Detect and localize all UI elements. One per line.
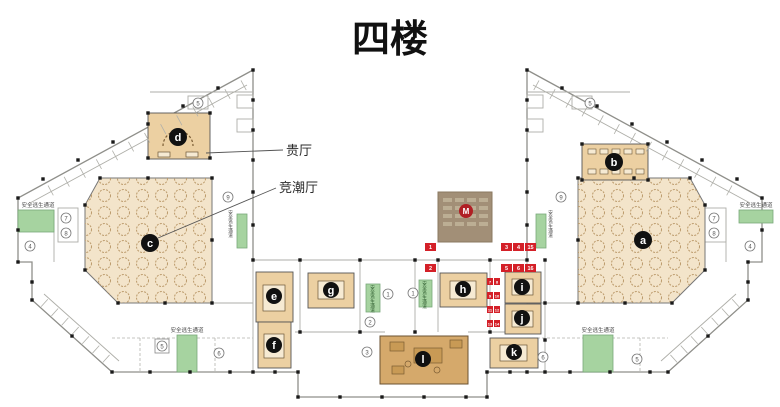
column-marker bbox=[746, 280, 749, 283]
column-marker bbox=[358, 258, 361, 261]
small-table bbox=[636, 149, 644, 154]
column-marker bbox=[648, 370, 651, 373]
svg-text:l: l bbox=[421, 354, 424, 366]
stair-tick bbox=[72, 327, 79, 334]
stair-tick bbox=[670, 355, 677, 362]
column-marker bbox=[83, 203, 86, 206]
vip-hall-label: 贵厅 bbox=[286, 143, 312, 158]
column-marker bbox=[630, 122, 633, 125]
column-marker bbox=[703, 268, 706, 271]
escape-box-right-edge bbox=[739, 210, 773, 223]
escape-label: 安全逃生通道 bbox=[739, 201, 773, 209]
column-marker bbox=[525, 370, 528, 373]
column-marker bbox=[16, 228, 19, 231]
svg-text:d: d bbox=[175, 132, 182, 144]
column-marker bbox=[688, 176, 691, 179]
column-marker bbox=[703, 203, 706, 206]
column-marker bbox=[146, 111, 149, 114]
column-marker bbox=[296, 395, 299, 398]
red-badge: 16 bbox=[527, 266, 533, 272]
room-f-marker: f bbox=[266, 337, 282, 353]
column-marker bbox=[665, 140, 668, 143]
red-badge: 3 bbox=[505, 245, 508, 251]
escape-label: 安全逃生通道 bbox=[21, 201, 55, 209]
small-table bbox=[600, 169, 608, 174]
red-badge: 2 bbox=[429, 266, 432, 272]
column-marker bbox=[208, 156, 211, 159]
room-i-marker: i bbox=[514, 279, 530, 295]
svg-text:g: g bbox=[328, 285, 335, 297]
red-badge: 14 bbox=[495, 322, 500, 327]
room-d-marker: d bbox=[169, 128, 187, 146]
stair-tick bbox=[534, 80, 539, 90]
small-table bbox=[600, 149, 608, 154]
column-marker bbox=[148, 370, 151, 373]
floor-plan: M 安全逃生通道 安全逃生通道 安全逃生通道 安全逃生通道 安全逃生通道 安全逃… bbox=[0, 0, 780, 407]
small-table bbox=[479, 206, 488, 210]
column-marker bbox=[98, 176, 101, 179]
column-marker bbox=[228, 370, 231, 373]
column-marker bbox=[666, 370, 669, 373]
red-badge: 13 bbox=[488, 322, 493, 327]
column-marker bbox=[16, 196, 19, 199]
column-marker bbox=[543, 370, 546, 373]
column-marker bbox=[525, 68, 528, 71]
jingchao-hall-label: 竞潮厅 bbox=[279, 180, 318, 195]
stair-tick bbox=[103, 355, 110, 362]
stair-tick bbox=[82, 336, 89, 343]
small-table bbox=[479, 222, 488, 226]
small-table bbox=[443, 222, 452, 226]
stair-tick bbox=[681, 346, 688, 353]
svg-text:e: e bbox=[271, 291, 277, 303]
column-marker bbox=[488, 258, 491, 261]
red-badge: 6 bbox=[517, 266, 520, 272]
column-marker bbox=[380, 395, 383, 398]
column-marker bbox=[608, 370, 611, 373]
column-marker bbox=[210, 301, 213, 304]
column-marker bbox=[464, 395, 467, 398]
stair-tick bbox=[582, 107, 587, 117]
column-marker bbox=[485, 370, 488, 373]
svg-text:a: a bbox=[640, 235, 647, 247]
small-table bbox=[443, 198, 452, 202]
small-table bbox=[455, 198, 464, 202]
small-table bbox=[479, 214, 488, 218]
room-m-letter: M bbox=[463, 207, 470, 216]
column-marker bbox=[251, 190, 254, 193]
column-marker bbox=[436, 258, 439, 261]
column-marker bbox=[543, 258, 546, 261]
column-marker bbox=[30, 298, 33, 301]
column-marker bbox=[560, 86, 563, 89]
small-table bbox=[443, 206, 452, 210]
red-badge: 5 bbox=[505, 266, 508, 272]
column-marker bbox=[30, 280, 33, 283]
column-marker bbox=[746, 260, 749, 263]
escape-box-bottom-left bbox=[177, 335, 197, 372]
red-badge-strip: 7 8 9 10 11 12 13 14 bbox=[487, 278, 500, 327]
column-marker bbox=[298, 330, 301, 333]
room-e-marker: e bbox=[266, 288, 282, 304]
room-m-block: M bbox=[438, 192, 492, 242]
column-marker bbox=[251, 68, 254, 71]
red-badge: 10 bbox=[495, 294, 500, 299]
escape-box-bottom-right bbox=[583, 335, 613, 372]
svg-text:i: i bbox=[520, 282, 523, 294]
column-marker bbox=[646, 178, 649, 181]
room-j-marker: j bbox=[514, 310, 530, 326]
svg-text:c: c bbox=[147, 238, 153, 250]
column-marker bbox=[188, 370, 191, 373]
column-marker bbox=[760, 196, 763, 199]
column-marker bbox=[358, 330, 361, 333]
column-marker bbox=[116, 301, 119, 304]
stair-tick bbox=[62, 318, 69, 325]
svg-text:b: b bbox=[611, 157, 618, 169]
column-marker bbox=[488, 330, 491, 333]
column-marker bbox=[163, 301, 166, 304]
column-marker bbox=[525, 128, 528, 131]
room-c-marker: c bbox=[141, 234, 159, 252]
small-table bbox=[467, 198, 476, 202]
escape-label-vertical: 安全逃生通道 bbox=[422, 280, 428, 310]
column-marker bbox=[576, 238, 579, 241]
column-marker bbox=[76, 158, 79, 161]
room-l-marker: l bbox=[415, 351, 431, 367]
stair-tick bbox=[722, 308, 729, 315]
page-title: 四楼 bbox=[352, 19, 428, 61]
escape-label-vertical: 安全逃生通道 bbox=[548, 209, 554, 239]
column-marker bbox=[413, 330, 416, 333]
column-marker bbox=[251, 158, 254, 161]
column-marker bbox=[146, 122, 149, 125]
column-marker bbox=[298, 258, 301, 261]
column-marker bbox=[623, 301, 626, 304]
stair-tick bbox=[41, 299, 48, 306]
column-marker bbox=[525, 98, 528, 101]
escape-label: 安全逃生通道 bbox=[581, 326, 615, 334]
stair-tick bbox=[732, 299, 739, 306]
column-marker bbox=[746, 298, 749, 301]
column-marker bbox=[41, 177, 44, 180]
room-a-marker: a bbox=[634, 231, 652, 249]
column-marker bbox=[251, 258, 254, 261]
column-marker bbox=[422, 395, 425, 398]
small-table bbox=[443, 214, 452, 218]
column-marker bbox=[646, 142, 649, 145]
escape-box-left-edge bbox=[18, 210, 54, 232]
red-badge: 12 bbox=[495, 308, 500, 313]
stair-tick bbox=[225, 89, 230, 99]
column-marker bbox=[16, 260, 19, 263]
column-marker bbox=[296, 370, 299, 373]
room-b-marker: b bbox=[605, 153, 623, 171]
column-marker bbox=[543, 338, 546, 341]
small-table bbox=[624, 169, 632, 174]
vip-hall-leader-line bbox=[206, 150, 283, 153]
svg-text:k: k bbox=[511, 347, 518, 359]
column-marker bbox=[735, 177, 738, 180]
stair-tick bbox=[209, 98, 214, 108]
room-letter-markers: a b c d e f g h i j k l bbox=[141, 128, 652, 367]
small-table bbox=[479, 198, 488, 202]
escape-box-right-inner bbox=[536, 214, 546, 248]
column-marker bbox=[508, 370, 511, 373]
stair-tick bbox=[550, 89, 555, 99]
column-marker bbox=[632, 176, 635, 179]
column-marker bbox=[110, 370, 113, 373]
column-marker bbox=[543, 301, 546, 304]
column-marker bbox=[568, 370, 571, 373]
column-marker bbox=[580, 178, 583, 181]
svg-text:f: f bbox=[272, 340, 276, 352]
red-badge: 15 bbox=[527, 245, 533, 251]
column-marker bbox=[595, 104, 598, 107]
room-k-marker: k bbox=[506, 344, 522, 360]
column-marker bbox=[181, 104, 184, 107]
column-marker bbox=[83, 268, 86, 271]
column-marker bbox=[251, 223, 254, 226]
column-marker bbox=[210, 238, 213, 241]
column-marker bbox=[576, 301, 579, 304]
column-marker bbox=[576, 176, 579, 179]
stair-tick bbox=[241, 80, 246, 90]
column-marker bbox=[251, 128, 254, 131]
small-table bbox=[636, 169, 644, 174]
column-marker bbox=[338, 395, 341, 398]
column-marker bbox=[580, 142, 583, 145]
small-table bbox=[467, 222, 476, 226]
column-marker bbox=[525, 158, 528, 161]
column-marker bbox=[525, 258, 528, 261]
column-marker bbox=[413, 258, 416, 261]
column-marker bbox=[251, 370, 254, 373]
small-table bbox=[588, 169, 596, 174]
column-marker bbox=[525, 223, 528, 226]
stair-tick bbox=[51, 308, 58, 315]
column-marker bbox=[760, 228, 763, 231]
column-marker bbox=[485, 395, 488, 398]
column-marker bbox=[216, 86, 219, 89]
column-marker bbox=[273, 370, 276, 373]
column-marker bbox=[251, 98, 254, 101]
small-table bbox=[588, 149, 596, 154]
small-table bbox=[624, 149, 632, 154]
column-marker bbox=[146, 176, 149, 179]
column-marker bbox=[210, 176, 213, 179]
escape-label-vertical: 安全逃生通道 bbox=[370, 284, 376, 314]
escape-box-left-inner bbox=[237, 214, 247, 248]
stair-tick bbox=[691, 336, 698, 343]
stair-tick bbox=[701, 327, 708, 334]
small-table bbox=[455, 222, 464, 226]
room-h-marker: h bbox=[455, 281, 471, 297]
column-marker bbox=[208, 111, 211, 114]
stair-tick bbox=[712, 318, 719, 325]
stair-tick bbox=[598, 115, 603, 125]
red-badge: 1 bbox=[429, 245, 432, 251]
svg-text:j: j bbox=[519, 313, 523, 325]
room-g-marker: g bbox=[323, 282, 339, 298]
column-marker bbox=[670, 301, 673, 304]
column-marker bbox=[525, 190, 528, 193]
stair-tick bbox=[566, 98, 571, 108]
stair-tick bbox=[93, 346, 100, 353]
column-marker bbox=[700, 158, 703, 161]
escape-label: 安全逃生通道 bbox=[170, 326, 204, 334]
column-marker bbox=[70, 334, 73, 337]
column-marker bbox=[146, 156, 149, 159]
svg-text:h: h bbox=[460, 284, 467, 296]
escape-label-vertical: 安全逃生通道 bbox=[228, 209, 234, 239]
column-marker bbox=[111, 140, 114, 143]
column-marker bbox=[706, 334, 709, 337]
